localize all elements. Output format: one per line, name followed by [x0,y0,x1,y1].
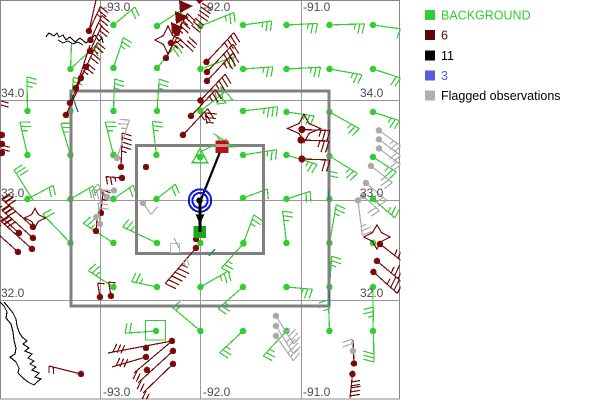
svg-text:-93.0: -93.0 [103,385,131,399]
svg-text:-91.0: -91.0 [303,385,331,399]
svg-text:34.0: 34.0 [1,86,25,100]
svg-text:33.0: 33.0 [1,186,25,200]
svg-text:33.0: 33.0 [360,186,384,200]
svg-text:3: 3 [441,69,448,83]
svg-text:Flagged observations: Flagged observations [441,89,561,103]
svg-text:32.0: 32.0 [360,286,384,300]
svg-text:-92.0: -92.0 [203,0,231,14]
svg-text:-92.0: -92.0 [203,385,231,399]
svg-text:34.0: 34.0 [360,86,384,100]
svg-text:6: 6 [441,29,448,43]
svg-text:32.0: 32.0 [1,286,25,300]
svg-text:-91.0: -91.0 [303,0,331,14]
svg-text:BACKGROUND: BACKGROUND [441,9,531,23]
svg-text:11: 11 [441,49,454,63]
svg-text:-93.0: -93.0 [103,0,131,14]
